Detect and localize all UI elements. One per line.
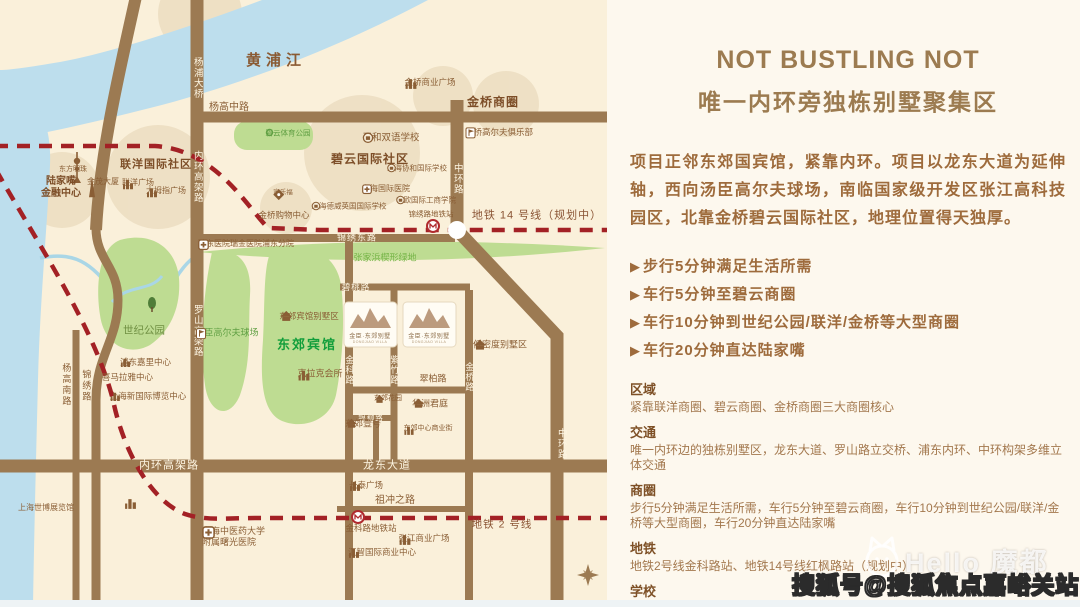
poi-huizhi-center: 汇智国际商业中心 (348, 547, 416, 557)
highlights-list: ▶步行5分钟满足生活所需 ▶车行5分钟至碧云商圈 ▶车行10分钟到世纪公园/联洋… (630, 253, 1066, 365)
highlight-item: ▶步行5分钟满足生活所需 (630, 253, 1066, 281)
poi-zhongou-school: 中欧国际工商学院 (396, 196, 456, 205)
highlight-text: 车行10分钟到世纪公园/联洋/金桥等大型商圈 (643, 314, 960, 331)
label-expo-hall: 上海世博展览馆 (18, 503, 74, 513)
poi-shuguang-hospital: 上海中医药大学 附属曙光医院 (202, 526, 265, 548)
compass-icon (577, 564, 599, 586)
poi-xiehe-school: 上海协和国际学校 (387, 164, 447, 173)
section-region: 区域 紧靠联洋商圈、碧云商圈、金桥商圈三大商圈核心 (630, 379, 1066, 415)
label-neihuan-elevated-vertical: 内环高架路 (191, 151, 202, 204)
info-panel: NOT BUSTLING NOT 唯一内环旁独栋别墅聚集区 项目正邻东郊国宾馆，… (607, 0, 1080, 607)
poi-biyun-sports-park: 碧云体育公园 (266, 129, 311, 138)
school-icon (387, 164, 396, 173)
poi-dongjiao-garden: 东郊花园 (374, 395, 402, 403)
poi-jinqiao-golf: 金桥高尔夫俱乐部 (465, 127, 533, 137)
poi-dongjiao-biz-street: 东郊中心商业街 (404, 425, 453, 433)
label-himalayas-center: 喜马拉雅中心 (102, 372, 153, 382)
label-jinxiu-station: 锦绣路地铁站 (409, 210, 454, 219)
villa-icon (345, 419, 358, 429)
section-business: 商圈 步行5分钟满足生活所需，车行5分钟至碧云商圈，车行10分钟到世纪公园/联洋… (630, 480, 1066, 531)
label-zhongou-school: 中欧国际工商学院 (396, 196, 456, 205)
section-body: 紧靠联洋商圈、碧云商圈、金桥商圈三大商圈核心 (630, 400, 1066, 415)
school-icon (396, 196, 405, 205)
label-longdong-avenue: 龙东大道 (363, 459, 411, 472)
section-heading: 区域 (630, 379, 1066, 398)
triangle-bullet-icon: ▶ (630, 343, 641, 358)
label-zizhu-road: 紫竹路 (389, 355, 400, 385)
carrefour-icon (273, 189, 284, 200)
villa-icon (279, 311, 293, 322)
label-century-park: 世纪公园 (123, 325, 165, 338)
poi-kerry-center: 浦东嘉里中心 (120, 357, 171, 367)
highlight-item: ▶车行20分钟直达陆家嘴 (630, 337, 1066, 365)
label-jinke-road: 金科路 (344, 355, 355, 385)
building-icon (348, 547, 360, 559)
poi-carrefour: 家乐福 (273, 189, 293, 197)
label-bitao-road: 碧桃路 (342, 282, 371, 292)
poi-damuzhi-plaza: 大拇指广场 (146, 186, 186, 196)
label-jinqiao-road: 金桥路 (464, 362, 475, 392)
poi-dongjiao-one: 东郊壹号 (345, 419, 381, 430)
poi-tangchen-golf: 汤臣高尔夫球场 (195, 328, 258, 339)
label-lujiazui-line2: 金融中心 (41, 188, 81, 200)
villa-logo-cn: 金臣·东郊别墅 (408, 331, 450, 340)
building-icon (146, 186, 158, 198)
jinmao-tower-icon (87, 177, 97, 199)
headline-english: NOT BUSTLING NOT (630, 46, 1066, 75)
poi-expo-center: 上海新国际博览中心 (110, 391, 187, 401)
hospital-icon (362, 184, 372, 194)
villa-logo-cn: 金臣·东郊别墅 (349, 331, 391, 340)
section-body: 唯一内环边的独栋别墅区，龙东大道、罗山路立交桥、浦东内环、中环构架多维立体交通 (630, 443, 1066, 473)
poi-dewei-school: 上海德威英国国际学校 (312, 202, 387, 211)
villa-logo-en: DONGJIAO VILLA (408, 340, 450, 344)
section-transport: 交通 唯一内环边的独栋别墅区，龙东大道、罗山路立交桥、浦东内环、中环构架多维立体… (630, 422, 1066, 473)
label-metro-line14: 地铁 14 号线（规划中） (472, 209, 602, 222)
highlight-item: ▶车行10分钟到世纪公园/联洋/金桥等大型商圈 (630, 309, 1066, 337)
poi-kelake-club: 克拉克会所 (297, 369, 342, 380)
label-xiehe-school: 上海协和国际学校 (387, 164, 447, 173)
villa-logo-text-2: 金臣·东郊别墅 DONGJIAO VILLA (408, 331, 450, 344)
highlight-text: 步行5分钟满足生活所需 (643, 258, 812, 275)
building-icon (120, 357, 131, 368)
label-cuibai-road: 翠柏路 (419, 374, 446, 385)
triangle-bullet-icon: ▶ (630, 287, 641, 302)
highlight-text: 车行5分钟至碧云商圈 (643, 286, 796, 303)
poi-jinmao: 金茂大厦 (87, 177, 119, 187)
building-icon (349, 480, 361, 492)
label-ruidong-hospital: 瑞东医院瑞金医院浦东分院 (198, 239, 294, 249)
label-zhangjiabang-greenbelt: 张家浜楔形绿地 (353, 253, 416, 264)
section-heading: 交通 (630, 422, 1066, 441)
intro-paragraph: 项目正邻东郊国宾馆，紧靠内环。项目以龙东大道为延伸轴，西向汤臣高尔夫球场，南临国… (630, 149, 1066, 233)
villa-icon (412, 399, 425, 409)
label-zuchongzhi-road: 祖冲之路 (375, 495, 415, 507)
label-metro-line2: 地铁 2 号线 (472, 519, 533, 532)
label-jinqiao-mall: 金桥购物中心 (258, 210, 309, 220)
bottom-strip (0, 600, 1080, 607)
promo-image: 黄浦江 杨浦大桥 内环高架路 罗山高架路 杨高中路 杨高南路 锦绣路 中环路 中… (0, 0, 1080, 607)
sohu-watermark: 搜狐号@搜狐焦点嘉峪关站 (792, 566, 1079, 600)
triangle-bullet-icon: ▶ (630, 259, 641, 274)
building-icon (404, 425, 415, 436)
golf-icon (195, 328, 206, 340)
golf-icon (465, 127, 476, 139)
section-heading: 商圈 (630, 480, 1066, 499)
poi-intl-hospital: 上海国际医院 (362, 184, 410, 194)
headline-chinese: 唯一内环旁独栋别墅聚集区 (630, 83, 1066, 117)
hospital-icon (202, 526, 215, 539)
label-lianyang-community: 联洋国际社区 (120, 158, 192, 171)
poi-pinghe-school: 平和双语学校 (362, 132, 419, 143)
highlight-text: 车行20分钟直达陆家嘴 (643, 342, 806, 359)
label-jinxiudong-road: 锦绣东路 (337, 233, 377, 244)
label-oriental-pearl: 东方明珠 (59, 166, 87, 174)
building-icon (404, 77, 417, 90)
label-zhonghuan-road-upper: 中环路 (451, 163, 462, 195)
building-icon (297, 369, 310, 382)
villa-icon (473, 340, 487, 351)
label-jinke-station: 金科路地铁站 (345, 523, 396, 533)
label-zhonghuan-road-lower: 中环路 (555, 428, 566, 460)
label-yanggaonan-road: 杨高南路 (61, 363, 72, 407)
label-neihuan-elevated-horizontal: 内环高架路 (139, 459, 199, 472)
poi-huazhou-junting: 华洲君庭 (412, 399, 448, 410)
poi-jinqiao-plaza: 金桥商业广场 (404, 77, 455, 87)
villa-icon (374, 395, 385, 404)
poi-zhangjiang-plaza: 张江商业广场 (398, 533, 449, 543)
section-body: 步行5分钟满足生活所需，车行5分钟至碧云商圈，车行10分钟到世纪公园/联洋/金桥… (630, 501, 1066, 531)
label-lujiazui: 陆家嘴 金融中心 (41, 176, 81, 200)
building-icon (122, 178, 134, 190)
map-canvas (0, 0, 607, 607)
label-dewei-school: 上海德威英国国际学校 (312, 202, 387, 211)
triangle-bullet-icon: ▶ (630, 315, 641, 330)
label-jinqiao-district: 金桥商圈 (467, 95, 519, 109)
interchange-node (448, 221, 466, 239)
label-yangpu-bridge: 杨浦大桥 (191, 57, 202, 99)
villa-logo-en: DONGJIAO VILLA (349, 340, 391, 344)
highlight-item: ▶车行5分钟至碧云商圈 (630, 281, 1066, 309)
label-dongjiao-guesthouse: 东郊宾馆 (277, 337, 337, 353)
label-jinxiu-road: 锦绣路 (81, 370, 92, 403)
school-icon (362, 132, 373, 143)
hospital-icon (198, 239, 209, 250)
park-icon (266, 129, 274, 137)
location-map: 黄浦江 杨浦大桥 内环高架路 罗山高架路 杨高中路 杨高南路 锦绣路 中环路 中… (0, 0, 607, 607)
label-lujiazui-line1: 陆家嘴 (41, 176, 81, 188)
school-icon (312, 202, 321, 211)
label-huangpu-river: 黄浦江 (246, 52, 306, 70)
building-icon (398, 533, 411, 546)
building-icon (110, 391, 121, 402)
label-expo-center: 上海新国际博览中心 (110, 391, 187, 401)
poi-ruidong-hospital: 瑞东医院瑞金医院浦东分院 (198, 239, 294, 249)
villa-logo-text-1: 金臣·东郊别墅 DONGJIAO VILLA (349, 331, 391, 344)
label-yanggaozhong-road: 杨高中路 (209, 102, 249, 114)
poi-changtai-plaza: 长泰广场 (349, 480, 383, 490)
poi-lowdensity-villa: 低密度别墅区 (473, 340, 527, 351)
poi-dongjiao-villa-area: 东郊宾馆别墅区 (279, 311, 339, 321)
